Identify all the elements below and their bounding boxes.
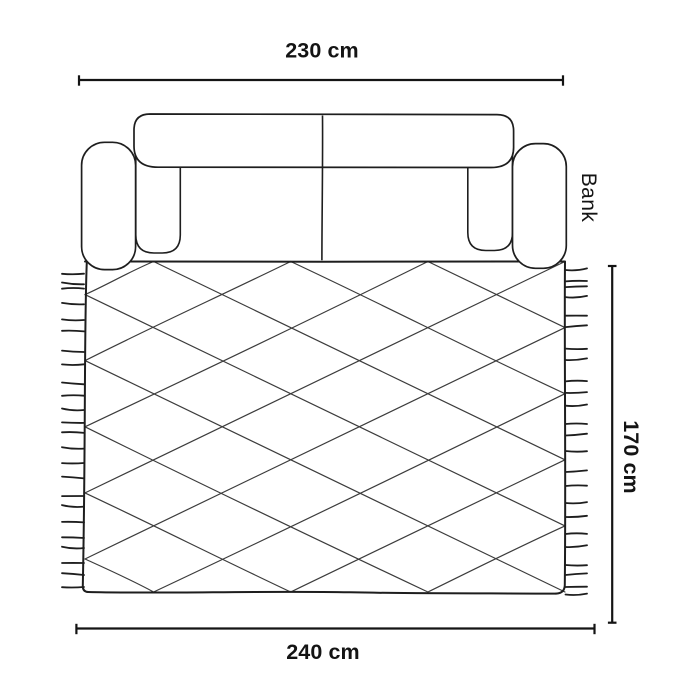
svg-text:230 cm: 230 cm — [285, 39, 359, 63]
svg-text:Bank: Bank — [577, 173, 600, 223]
svg-text:240 cm: 240 cm — [286, 640, 360, 664]
svg-text:170 cm: 170 cm — [619, 420, 643, 494]
